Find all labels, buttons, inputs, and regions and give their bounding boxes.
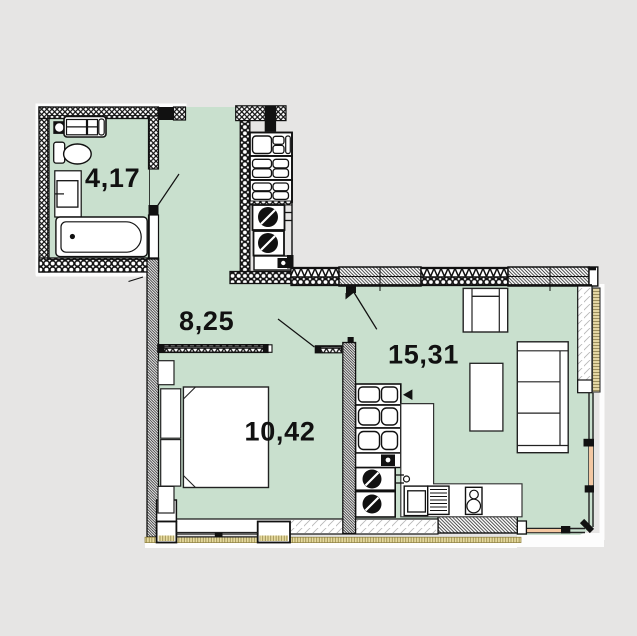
svg-text:15,31: 15,31 (388, 340, 459, 370)
svg-text:4,17: 4,17 (85, 163, 140, 193)
svg-text:8,25: 8,25 (179, 306, 234, 336)
svg-text:10,42: 10,42 (245, 417, 316, 447)
